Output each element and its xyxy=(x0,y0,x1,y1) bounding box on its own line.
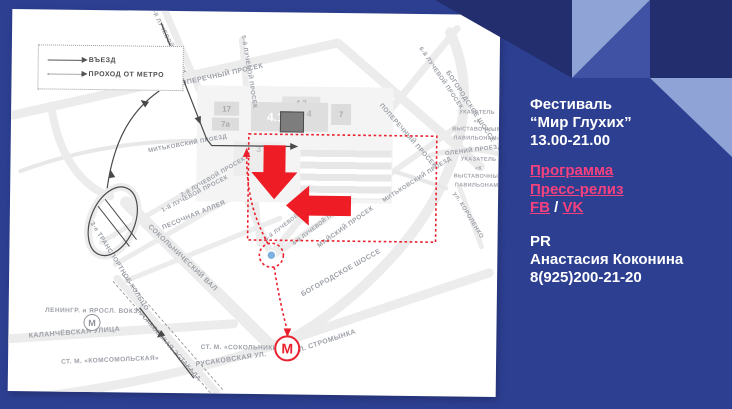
festival-title-line1: Фестиваль xyxy=(530,96,632,114)
pr-contact-phone: 8(925)200-21-20 xyxy=(530,269,683,287)
slide: 17 7а 4.2 4.1 4 7 3 1 ПОПЕРЕЧНЫЙ ПРОСЕК … xyxy=(0,0,732,409)
festival-title: Фестиваль “Мир Глухих” 13.00-21.00 xyxy=(530,96,632,150)
vk-link[interactable]: VK xyxy=(563,199,584,216)
metro-letter: М xyxy=(88,317,96,327)
metro-station-komsomolskaya-icon: М xyxy=(83,314,100,331)
program-link[interactable]: Программа xyxy=(530,162,613,179)
metro-letter: М xyxy=(281,340,293,356)
metro-station-sokolniki-icon: М xyxy=(274,335,300,361)
links-block: Программа Пресс-релиз FB / VK xyxy=(530,162,623,218)
facebook-link[interactable]: FB xyxy=(530,199,550,216)
pr-contact-name: Анастасия Коконина xyxy=(530,251,683,269)
press-release-link[interactable]: Пресс-релиз xyxy=(530,181,623,198)
pr-label: PR xyxy=(530,233,683,251)
park-circle-fountain xyxy=(267,251,276,260)
festival-title-line2: “Мир Глухих” xyxy=(530,114,632,132)
pr-contact-block: PR Анастасия Коконина 8(925)200-21-20 xyxy=(530,233,683,287)
festival-hours: 13.00-21.00 xyxy=(530,132,632,150)
